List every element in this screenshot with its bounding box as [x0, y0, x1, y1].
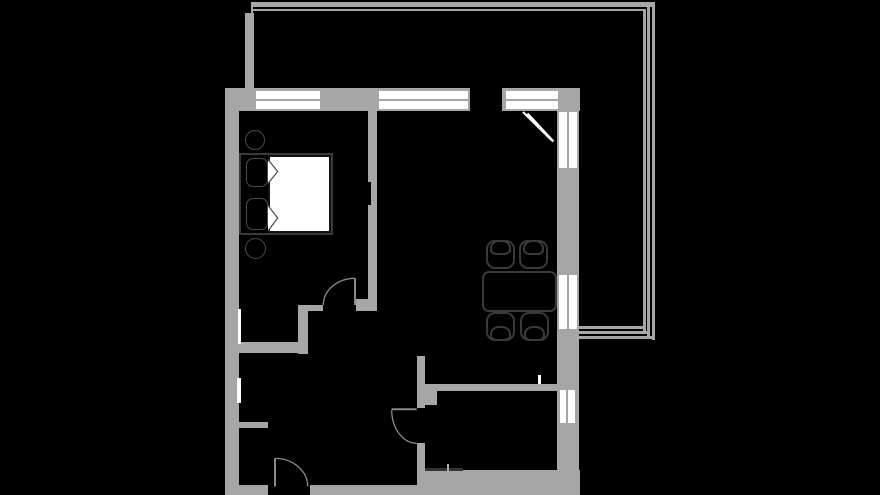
wall-tick-mark [368, 182, 371, 205]
bathroom-left-wall-upper [417, 356, 425, 409]
window-divider [379, 99, 469, 101]
bathroom-window [560, 390, 575, 423]
pillow-bottom [246, 198, 268, 230]
balcony-rail-bottom-inner [578, 326, 646, 329]
living-room-tick [538, 375, 541, 385]
living-window-top-left [379, 91, 469, 109]
balcony-door-diagonal-1 [523, 112, 552, 141]
balcony-rail-right-mid [647, 5, 650, 336]
left-exterior-wall [225, 88, 239, 495]
bathroom-door-arc [392, 410, 417, 443]
balcony-left-wall-stub [245, 13, 254, 93]
bed-mattress [268, 155, 332, 233]
hallway-stub-wall [225, 422, 268, 429]
window-divider [256, 99, 320, 101]
bedroom-door-header-right [356, 299, 377, 311]
bedroom-living-wall [368, 110, 376, 310]
door-swing-overlay [0, 0, 880, 495]
floor-plan [0, 0, 880, 495]
balcony-door-window-upper [559, 112, 577, 168]
balcony-rail-top-outer [252, 2, 655, 7]
window-divider [566, 390, 568, 423]
entrance-door-arc [275, 458, 308, 486]
balcony-rail-bottom-outer [578, 336, 655, 340]
window-divider [506, 99, 559, 101]
bottom-wall-mid [310, 485, 417, 495]
pillow-top [246, 158, 268, 187]
bathroom-top-wall [423, 384, 557, 391]
balcony-door-window-lower [559, 275, 577, 329]
bathroom-threshold-line [425, 468, 463, 471]
balcony-rail-right-inner [643, 9, 646, 332]
radiator-niche-lower [237, 378, 241, 403]
bedroom-window [256, 91, 320, 109]
radiator-niche-upper [238, 309, 242, 344]
bottom-wall-right [417, 470, 580, 495]
window-divider [567, 112, 569, 168]
bottom-wall-left [225, 485, 268, 495]
dining-chair-4 [520, 312, 549, 341]
balcony-door-diagonal-2 [528, 114, 554, 142]
balcony-rail-bottom-mid [578, 331, 650, 334]
dining-table [482, 271, 557, 312]
bathroom-threshold-tick [447, 464, 450, 471]
dining-chair-3 [486, 312, 515, 341]
dining-chair-1 [486, 240, 515, 269]
round-stool-bottom [245, 238, 266, 259]
bedroom-bottom-wall [237, 342, 308, 354]
living-window-top-right [506, 91, 559, 109]
bedroom-door-arc [323, 278, 355, 305]
round-stool-top [245, 130, 265, 150]
dining-chair-2 [519, 240, 548, 269]
balcony-rail-top-inner [253, 9, 646, 11]
balcony-rail-right-outer [652, 2, 656, 340]
window-divider [567, 275, 569, 329]
